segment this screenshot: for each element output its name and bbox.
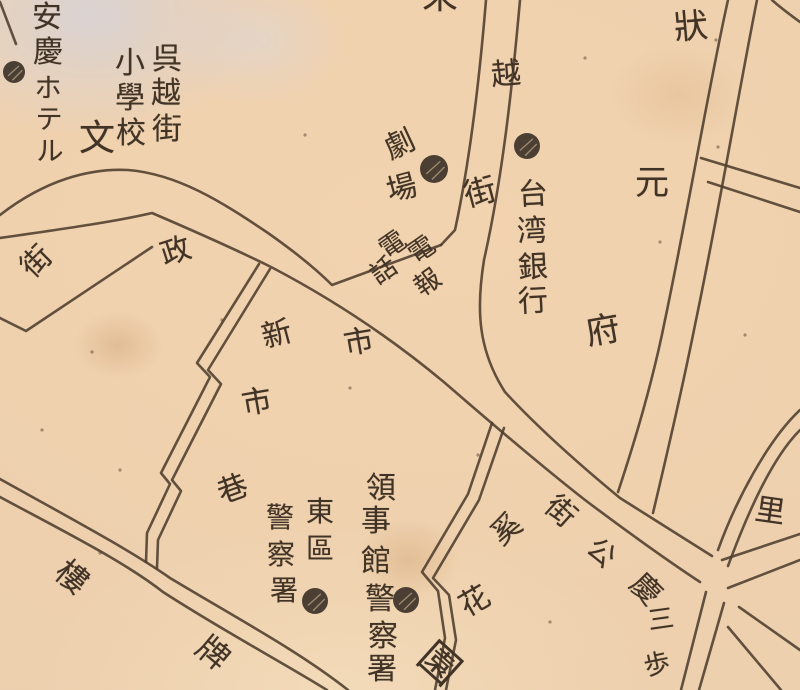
road-ne-branch-lower xyxy=(708,182,800,212)
map-label-yue-street-name: 越 xyxy=(490,59,523,92)
road-east-street-upper xyxy=(718,410,800,550)
map-label-east-district-police: 警 xyxy=(266,504,294,532)
map-label-consulate-police: 警 xyxy=(365,585,395,615)
foxing-speck xyxy=(90,350,93,353)
road-zhuangyuanfu-street-east-line xyxy=(653,0,757,513)
map-label-consulate-police: 事 xyxy=(361,507,391,537)
map-label-east-district-police: 察 xyxy=(267,541,295,569)
map-label-school-mark: 文 xyxy=(79,121,115,157)
map-label-top-edge-partial-char: 來 xyxy=(422,0,458,15)
road-se-fork-upper xyxy=(739,607,800,650)
map-label-zhuangyuan-fu: 狀 xyxy=(673,9,710,46)
map-label-sanbu-partial: 三 xyxy=(646,605,675,634)
map-label-shi-char-main-road: 市 xyxy=(342,326,377,361)
map-label-xinshi-lane-name: 市 xyxy=(240,386,275,421)
map-label-east-district-police: 區 xyxy=(306,535,334,563)
foxing-speck xyxy=(716,145,719,148)
map-label-anqing-hotel: ル xyxy=(37,139,64,166)
road-se-fork-lower xyxy=(728,627,781,690)
foxing-speck xyxy=(583,56,586,59)
foxing-speck xyxy=(98,551,101,554)
map-label-wuyue-street-school: 呉 xyxy=(152,45,182,75)
map-label-consulate-police: 領 xyxy=(366,474,396,504)
poi-circle-east-police-poi xyxy=(302,588,328,614)
road-corner-line-nw xyxy=(0,2,16,44)
poi-circle-hotel-poi xyxy=(3,61,25,83)
road-south-fork-east xyxy=(699,603,724,690)
road-xinshi-lane-west-line xyxy=(146,264,259,562)
map-label-wuyue-street-school: 小 xyxy=(115,49,145,79)
foxing-speck xyxy=(548,620,551,623)
foxing-speck xyxy=(303,133,306,136)
historical-map-canvas[interactable]: 安慶ホテル呉越街小學校文來越街劇場電報電話台湾銀行狀元府政市街新市巷東區警察署領… xyxy=(0,0,800,690)
map-label-consulate-police: 館 xyxy=(361,547,391,577)
foxing-speck xyxy=(743,333,746,336)
map-label-wuyue-street-school: 越 xyxy=(151,79,181,109)
foxing-speck xyxy=(220,318,223,321)
poi-circle-consulate-police-poi xyxy=(393,587,419,613)
map-label-bank-of-taiwan: 銀 xyxy=(517,252,549,284)
map-label-wuyue-street-school: 學 xyxy=(115,84,145,114)
road-east-fork-lower xyxy=(728,560,800,588)
map-label-wuyue-street-school: 校 xyxy=(116,119,146,149)
map-label-consulate-police: 察 xyxy=(368,622,398,652)
foxing-speck xyxy=(348,386,351,389)
map-label-consulate-police: 署 xyxy=(367,655,397,685)
map-label-zhuangyuan-fu: 府 xyxy=(583,311,622,350)
road-east-fork-upper xyxy=(722,534,800,560)
map-label-li-char: 里 xyxy=(753,495,787,529)
poi-circle-bank-poi xyxy=(514,133,540,159)
map-label-east-district-police: 東 xyxy=(306,498,334,526)
map-label-anqing-hotel: ホ xyxy=(35,76,62,103)
road-main-road-south-edge xyxy=(0,213,700,582)
map-label-sanbu-partial: 歩 xyxy=(642,650,673,681)
map-label-bank-of-taiwan: 台 xyxy=(517,179,549,211)
map-label-anqing-hotel: テ xyxy=(36,107,63,134)
map-label-wuyue-street-school: 街 xyxy=(152,115,182,145)
road-corner-line-ne xyxy=(772,0,800,22)
foxing-speck xyxy=(40,428,43,431)
map-label-bank-of-taiwan: 行 xyxy=(517,286,549,318)
foxing-speck xyxy=(658,240,661,243)
foxing-speck xyxy=(118,468,121,471)
map-label-east-district-police: 署 xyxy=(270,577,298,605)
map-label-anqing-hotel: 安 xyxy=(32,3,62,33)
poi-circle-theater-poi xyxy=(420,155,448,183)
map-label-bank-of-taiwan: 湾 xyxy=(516,216,548,248)
map-label-anqing-hotel: 慶 xyxy=(33,38,63,68)
map-label-zhuangyuan-fu: 元 xyxy=(635,166,669,200)
foxing-speck xyxy=(476,453,479,456)
foxing-speck xyxy=(714,38,717,41)
